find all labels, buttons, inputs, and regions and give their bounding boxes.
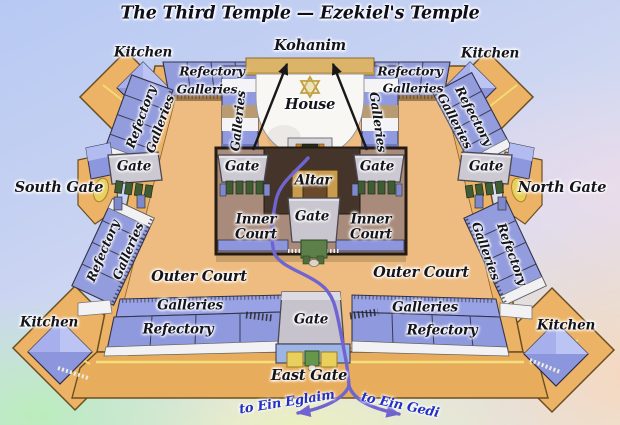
label-inner-court-east: Inner Court — [344, 212, 398, 241]
label-gate-south: Gate — [117, 160, 151, 175]
label-gate-inner-front: Gate — [295, 210, 329, 225]
label-galleries-bottom-right: Galleries — [392, 301, 458, 316]
label-gate-inner-west: Gate — [225, 160, 259, 175]
label-house: House — [285, 97, 335, 113]
label-kitchen-bottom-left: Kitchen — [20, 316, 78, 331]
label-galleries-bottom-left: Galleries — [157, 299, 223, 314]
page-title: The Third Temple — Ezekiel's Temple — [120, 5, 479, 24]
label-gate-north: Gate — [469, 160, 503, 175]
label-south-gate: South Gate — [15, 180, 104, 196]
label-refectory-top-left: Refectory — [179, 64, 244, 78]
label-refectory-bottom-left: Refectory — [143, 323, 214, 338]
label-refectory-top-right: Refectory — [377, 64, 442, 78]
label-gate-east-tower: Gate — [294, 313, 328, 328]
label-north-gate: North Gate — [518, 180, 607, 196]
label-refectory-bottom-right: Refectory — [407, 324, 478, 339]
label-galleries-top-right: Galleries — [383, 81, 444, 95]
label-kitchen-bottom-right: Kitchen — [537, 319, 595, 334]
label-inner-court-west: Inner Court — [229, 212, 283, 241]
label-gate-inner-east: Gate — [360, 160, 394, 175]
label-kitchen-top-left: Kitchen — [114, 46, 172, 61]
label-outer-court-east: Outer Court — [373, 265, 469, 281]
label-kohanim: Kohanim — [274, 38, 346, 54]
label-east-gate: East Gate — [271, 368, 347, 384]
label-outer-court-west: Outer Court — [151, 269, 247, 285]
label-altar: Altar — [295, 174, 332, 189]
label-kitchen-top-right: Kitchen — [461, 47, 519, 62]
temple-diagram: The Third Temple — Ezekiel's Temple Koha… — [0, 0, 620, 425]
label-galleries-top-left: Galleries — [177, 82, 238, 96]
